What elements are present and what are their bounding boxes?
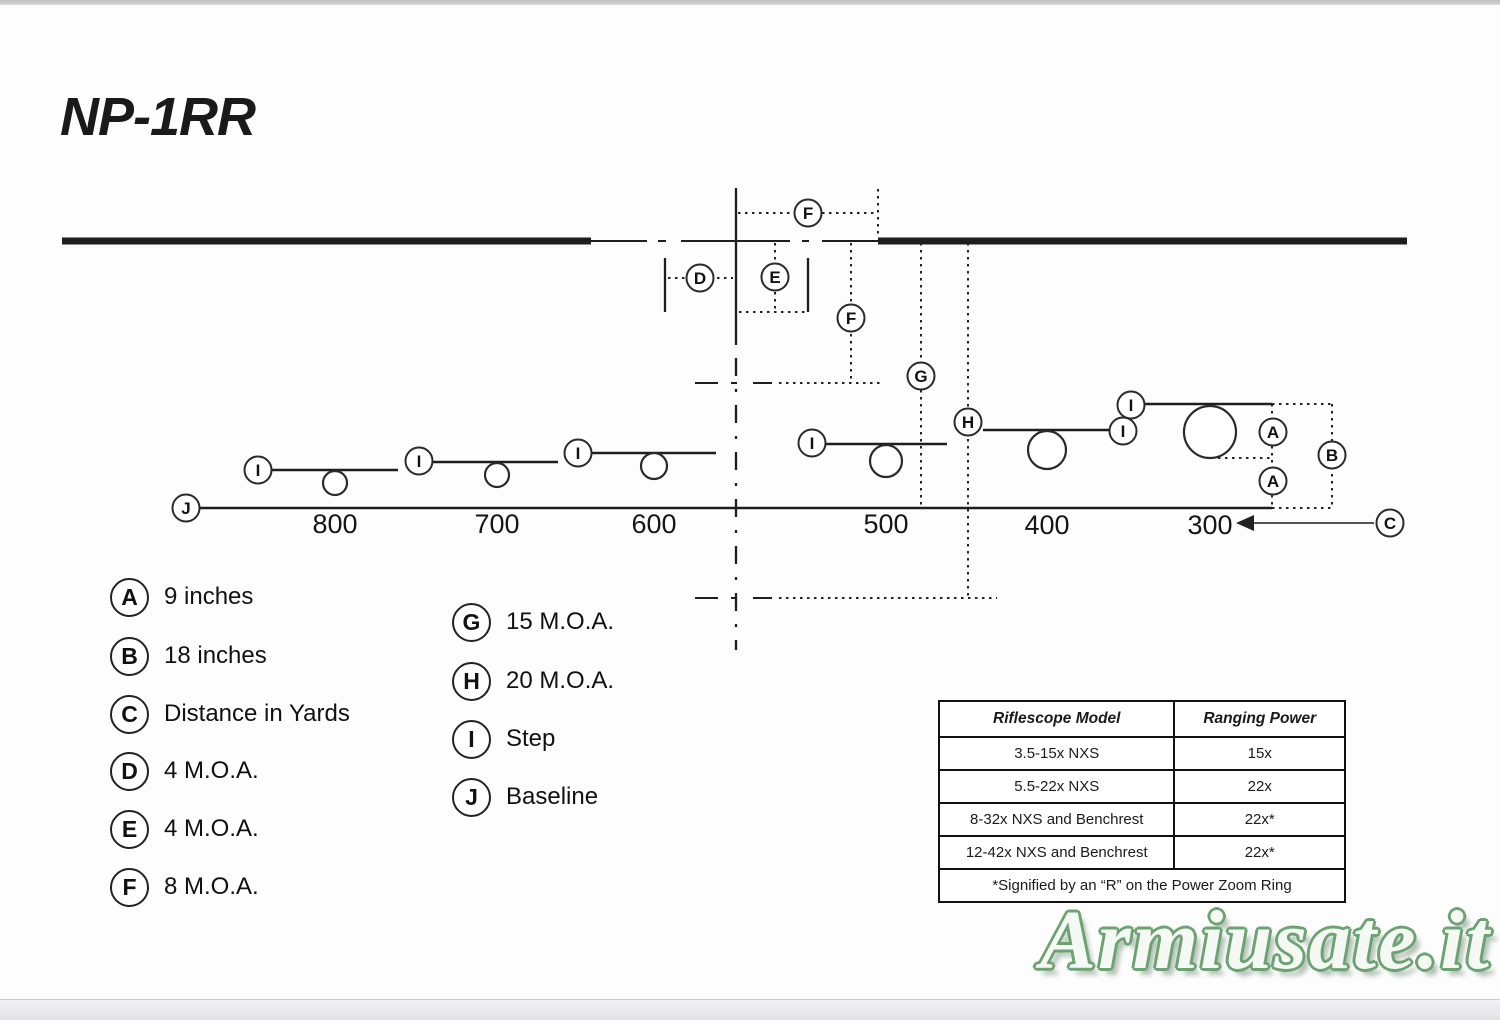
callout-letter: A (1267, 423, 1279, 442)
table-cell-power: 22x (1174, 770, 1345, 803)
legend-item-h: H 20 M.O.A. (452, 661, 614, 701)
callout-j: J (173, 495, 200, 522)
callout-letter: I (810, 434, 815, 453)
legend-label: 8 M.O.A. (164, 873, 259, 901)
callout-letter: A (1267, 472, 1279, 491)
callout-i-700: I (406, 448, 433, 475)
callout-letter: I (417, 452, 422, 471)
legend-label: 9 inches (164, 583, 253, 611)
step-ball-700 (485, 463, 509, 487)
legend-letter-circle: C (110, 695, 149, 734)
legend-label: Step (506, 725, 555, 753)
callout-letter: I (1129, 396, 1134, 415)
table-row: 12-42x NXS and Benchrest 22x* (939, 836, 1345, 869)
distance-label: 400 (1024, 510, 1069, 540)
legend-letter-circle: G (452, 603, 491, 642)
callout-i-400: I (1110, 418, 1137, 445)
table-cell-power: 15x (1174, 737, 1345, 770)
callout-letter: D (694, 269, 706, 288)
callout-e: E (762, 264, 789, 291)
table-row: 3.5-15x NXS 15x (939, 737, 1345, 770)
callout-letter: J (181, 499, 190, 518)
table-cell-model: 5.5-22x NXS (939, 770, 1174, 803)
legend-item-g: G 15 M.O.A. (452, 602, 614, 642)
legend-label: Baseline (506, 783, 598, 811)
table-row: 5.5-22x NXS 22x (939, 770, 1345, 803)
legend-letter-circle: H (452, 662, 491, 701)
legend-label: 18 inches (164, 642, 267, 670)
legend-letter-circle: A (110, 578, 149, 617)
step-ball-500 (870, 445, 902, 477)
callout-i-500: I (799, 430, 826, 457)
callout-letter: B (1326, 446, 1338, 465)
callout-a-lower: A (1260, 468, 1287, 495)
legend-label: Distance in Yards (164, 700, 350, 728)
riflescope-table: Riflescope Model Ranging Power 3.5-15x N… (938, 700, 1346, 903)
legend-item-e: E 4 M.O.A. (110, 809, 259, 849)
callout-d: D (687, 265, 714, 292)
legend-label: 4 M.O.A. (164, 757, 259, 785)
distance-label: 300 (1187, 510, 1232, 540)
callout-i-300: I (1118, 392, 1145, 419)
callout-letter: I (1121, 422, 1126, 441)
callout-b: B (1319, 442, 1346, 469)
callout-letter: F (846, 309, 856, 328)
legend-label: 15 M.O.A. (506, 608, 614, 636)
step-ball-400 (1028, 431, 1066, 469)
callout-i-600: I (565, 440, 592, 467)
legend-item-f: F 8 M.O.A. (110, 867, 259, 907)
callout-letter: G (914, 367, 927, 386)
callout-letter: H (962, 413, 974, 432)
legend-letter-circle: D (110, 752, 149, 791)
distance-labels: 800 700 600 500 400 300 (312, 509, 1232, 540)
legend-letter-circle: I (452, 720, 491, 759)
callout-i-800: I (245, 457, 272, 484)
step-ball-600 (641, 453, 667, 479)
callout-h: H (955, 409, 982, 436)
table-header-model: Riflescope Model (939, 701, 1174, 737)
legend-item-j: J Baseline (452, 777, 598, 817)
callout-letter: C (1384, 514, 1396, 533)
legend-letter-circle: B (110, 637, 149, 676)
distance-label: 500 (863, 509, 908, 539)
callout-f-side: F (838, 305, 865, 332)
callout-letter: F (803, 204, 813, 223)
table-cell-model: 12-42x NXS and Benchrest (939, 836, 1174, 869)
legend-item-d: D 4 M.O.A. (110, 751, 259, 791)
callout-g: G (908, 363, 935, 390)
table-header-row: Riflescope Model Ranging Power (939, 701, 1345, 737)
legend-letter-circle: E (110, 810, 149, 849)
legend-letter-circle: J (452, 778, 491, 817)
table-cell-power: 22x* (1174, 803, 1345, 836)
callout-letter: I (576, 444, 581, 463)
arrow-head (1236, 515, 1254, 531)
legend-item-b: B 18 inches (110, 636, 267, 676)
legend-label: 4 M.O.A. (164, 815, 259, 843)
callout-c: C (1377, 510, 1404, 537)
callout-letter: E (769, 268, 780, 287)
table-header-power: Ranging Power (1174, 701, 1345, 737)
callout-letter: I (256, 461, 261, 480)
distance-label: 800 (312, 509, 357, 539)
distance-label: 700 (474, 509, 519, 539)
legend-item-i: I Step (452, 719, 555, 759)
table-row: 8-32x NXS and Benchrest 22x* (939, 803, 1345, 836)
callout-a-upper: A (1260, 419, 1287, 446)
watermark-logo: Armiusate.it (1040, 892, 1491, 989)
table-cell-model: 8-32x NXS and Benchrest (939, 803, 1174, 836)
legend-item-a: A 9 inches (110, 577, 253, 617)
legend-label: 20 M.O.A. (506, 667, 614, 695)
table-cell-power: 22x* (1174, 836, 1345, 869)
distance-label: 600 (631, 509, 676, 539)
bottom-edge-band (0, 999, 1500, 1020)
step-ball-800 (323, 471, 347, 495)
step-ball-300 (1184, 406, 1236, 458)
legend-item-c: C Distance in Yards (110, 694, 350, 734)
table-cell-model: 3.5-15x NXS (939, 737, 1174, 770)
legend-letter-circle: F (110, 868, 149, 907)
measure-c-arrow (1236, 515, 1374, 531)
callout-f-top: F (795, 200, 822, 227)
